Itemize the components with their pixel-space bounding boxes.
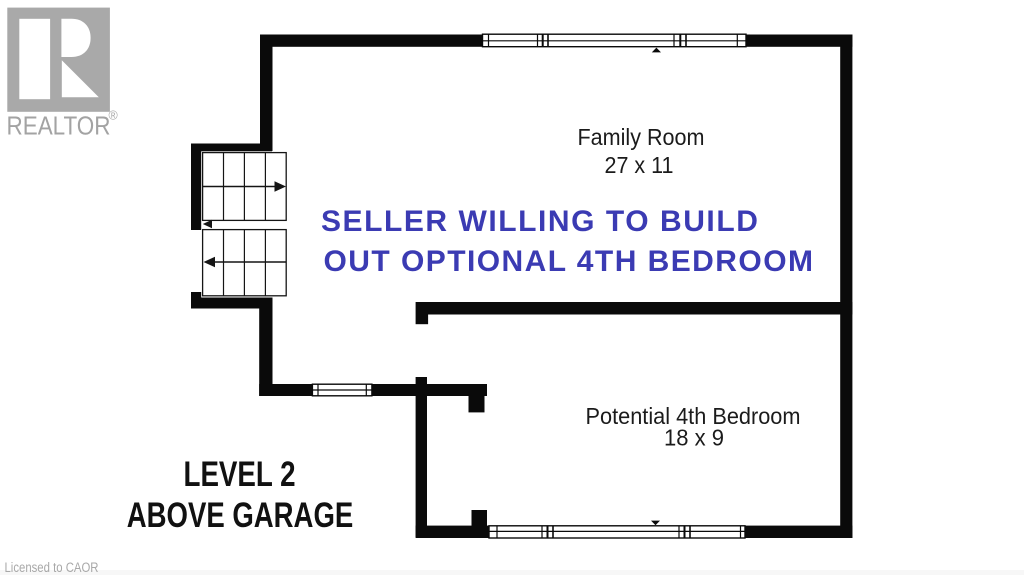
svg-text:REALTOR: REALTOR — [7, 111, 111, 141]
svg-text:Family Room: Family Room — [578, 124, 705, 150]
svg-text:SELLER WILLING TO BUILD: SELLER WILLING TO BUILD — [321, 205, 759, 238]
svg-text:27 x 11: 27 x 11 — [605, 152, 674, 178]
svg-text:OUT OPTIONAL 4TH BEDROOM: OUT OPTIONAL 4TH BEDROOM — [324, 245, 815, 278]
svg-text:LEVEL 2: LEVEL 2 — [184, 455, 296, 494]
svg-text:®: ® — [109, 109, 119, 123]
svg-text:Licensed to CAOR: Licensed to CAOR — [5, 560, 99, 575]
svg-text:18 x 9: 18 x 9 — [664, 425, 724, 451]
svg-text:ABOVE GARAGE: ABOVE GARAGE — [127, 496, 354, 535]
